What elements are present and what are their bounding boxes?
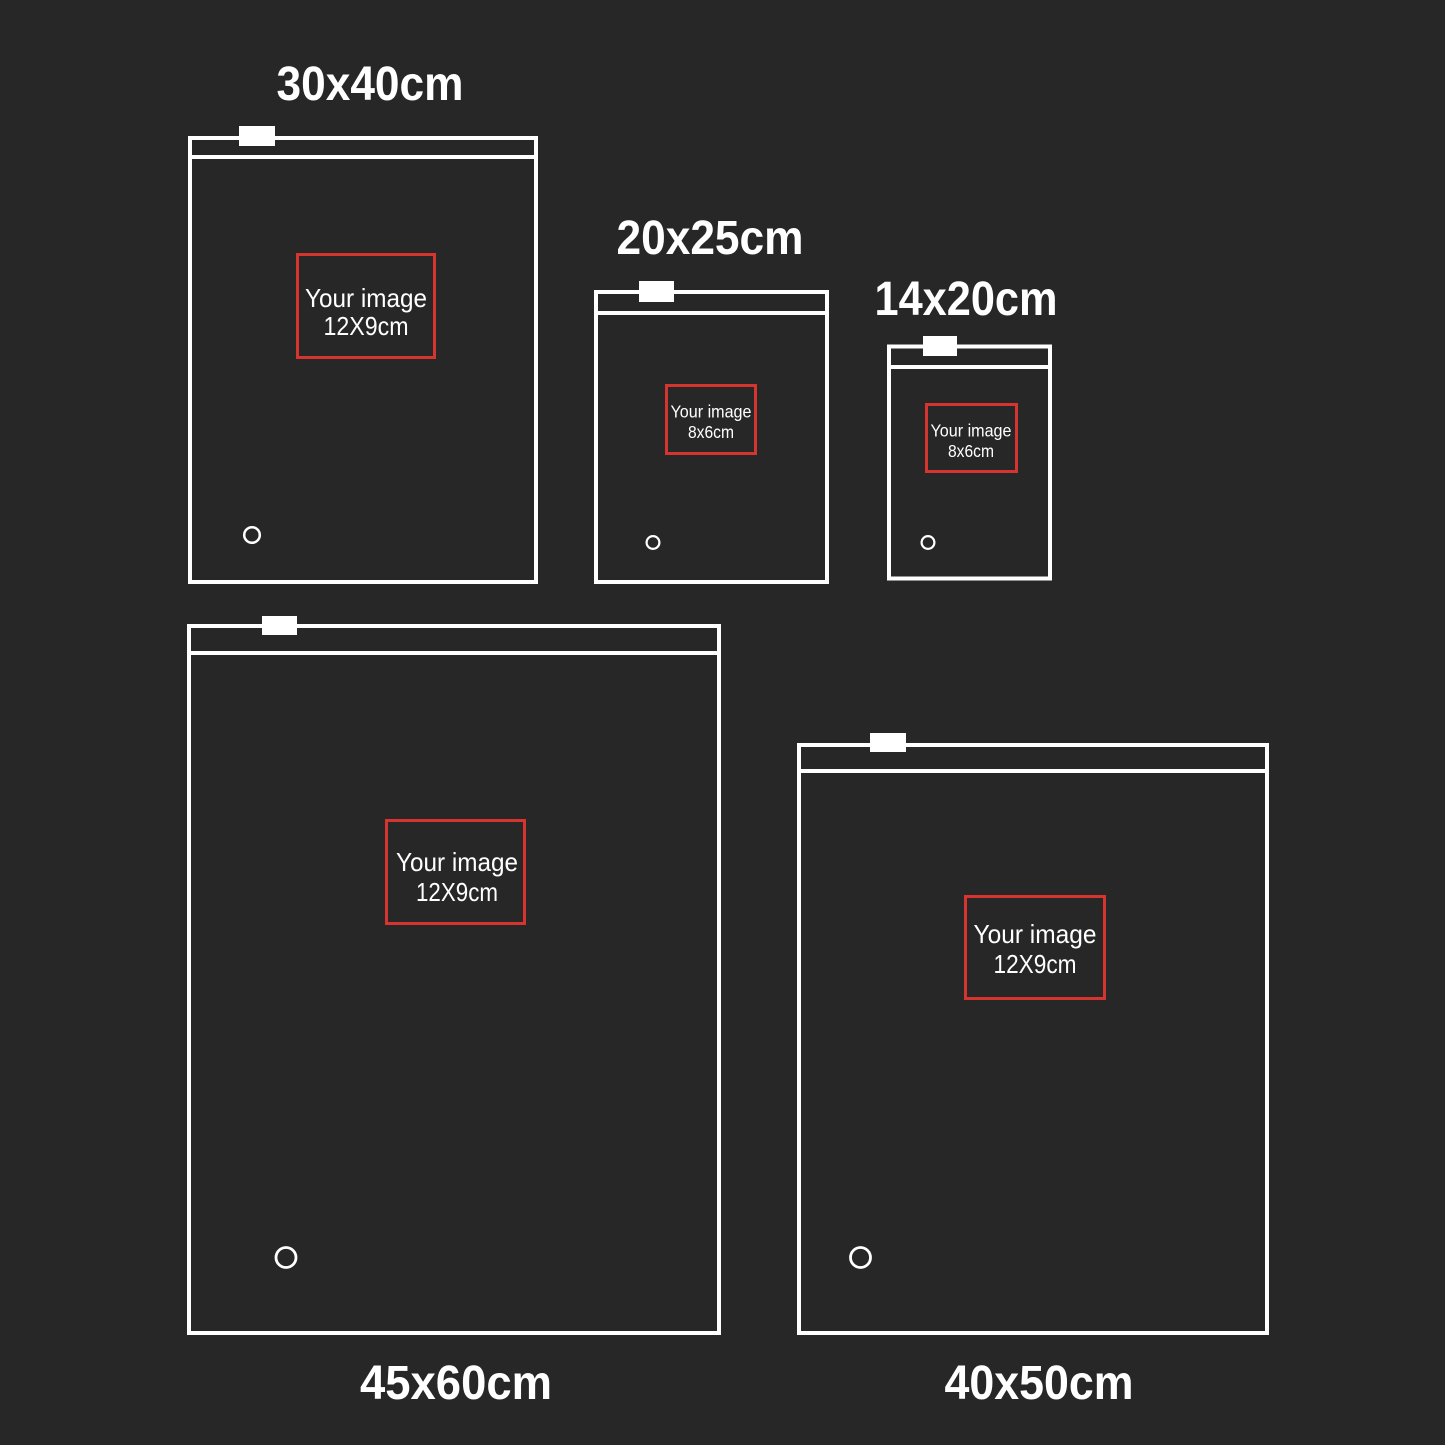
svg-text:8x6cm: 8x6cm (688, 422, 734, 442)
svg-text:12X9cm: 12X9cm (994, 949, 1077, 979)
svg-text:8x6cm: 8x6cm (948, 441, 994, 461)
svg-text:Your image: Your image (396, 847, 518, 877)
svg-text:12X9cm: 12X9cm (324, 311, 409, 341)
svg-text:Your image: Your image (305, 283, 427, 313)
svg-text:30x40cm: 30x40cm (277, 58, 464, 111)
svg-text:40x50cm: 40x50cm (945, 1357, 1134, 1410)
svg-text:14x20cm: 14x20cm (875, 273, 1058, 326)
svg-text:12X9cm: 12X9cm (416, 877, 498, 907)
svg-text:20x25cm: 20x25cm (617, 212, 804, 265)
svg-text:Your image: Your image (974, 919, 1097, 949)
svg-text:45x60cm: 45x60cm (360, 1357, 552, 1410)
svg-text:Your image: Your image (671, 402, 752, 422)
svg-text:Your image: Your image (931, 421, 1012, 441)
